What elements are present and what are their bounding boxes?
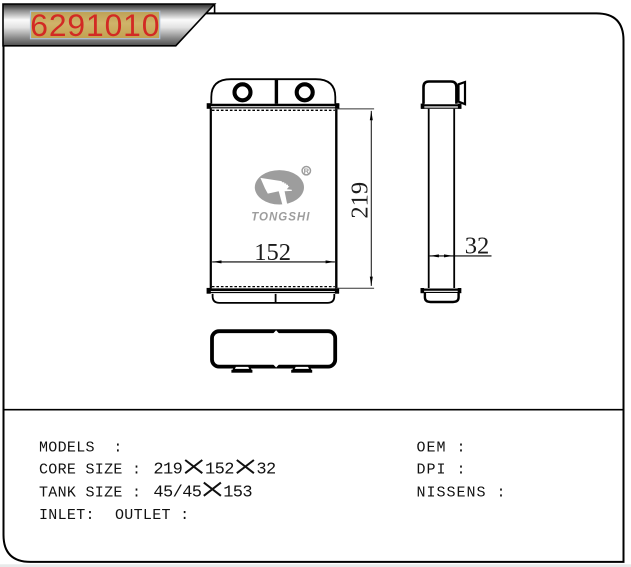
svg-text:OUTLET :: OUTLET : [115, 507, 189, 524]
svg-text:TONGSHI: TONGSHI [251, 212, 310, 224]
svg-text:INLET:: INLET: [39, 507, 95, 524]
svg-text:NISSENS :: NISSENS : [417, 484, 507, 501]
svg-text:CORE SIZE :: CORE SIZE : [39, 462, 141, 479]
svg-text:R: R [304, 167, 310, 176]
svg-text:219: 219 [346, 182, 373, 219]
svg-text:153: 153 [223, 483, 252, 502]
svg-text:32: 32 [256, 461, 275, 480]
svg-text:219: 219 [153, 461, 182, 480]
svg-text:32: 32 [465, 233, 490, 260]
svg-text:45/45: 45/45 [153, 483, 201, 502]
svg-text:DPI :: DPI : [417, 462, 467, 479]
svg-text:OEM :: OEM : [417, 440, 467, 457]
svg-text:6291010: 6291010 [30, 7, 160, 43]
svg-text:152: 152 [205, 461, 234, 480]
svg-text:MODELS :: MODELS : [39, 440, 123, 457]
svg-text:152: 152 [254, 239, 291, 266]
svg-text:TANK SIZE :: TANK SIZE : [39, 484, 141, 501]
